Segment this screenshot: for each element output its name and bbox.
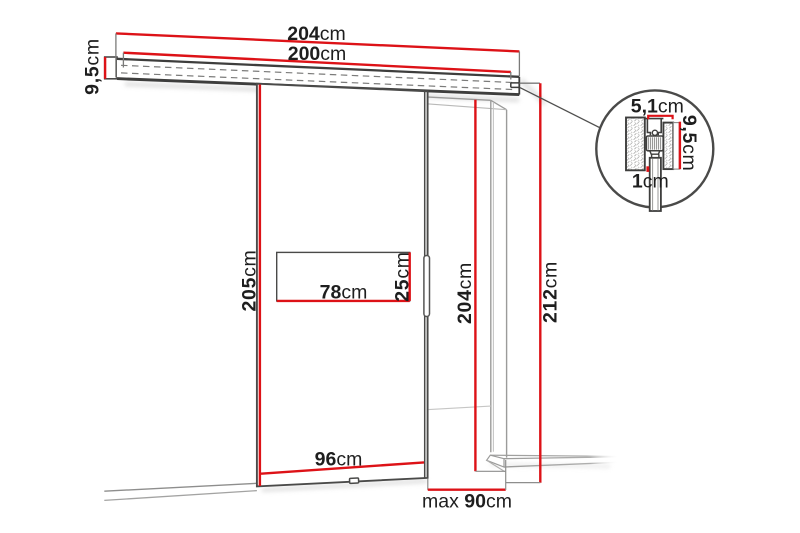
svg-text:78cm: 78cm: [320, 282, 368, 304]
svg-text:205cm: 205cm: [238, 249, 260, 311]
svg-text:9,5cm: 9,5cm: [82, 38, 104, 95]
svg-text:204cm: 204cm: [287, 23, 346, 45]
svg-text:max 90cm: max 90cm: [422, 491, 512, 513]
svg-text:96cm: 96cm: [315, 449, 363, 471]
svg-text:212cm: 212cm: [540, 261, 562, 323]
svg-text:204cm: 204cm: [454, 262, 476, 324]
svg-text:25cm: 25cm: [392, 251, 414, 302]
svg-text:1cm: 1cm: [632, 170, 669, 192]
svg-text:200cm: 200cm: [288, 43, 347, 65]
svg-text:5,1cm: 5,1cm: [631, 95, 684, 117]
svg-text:9,5cm: 9,5cm: [678, 115, 700, 172]
